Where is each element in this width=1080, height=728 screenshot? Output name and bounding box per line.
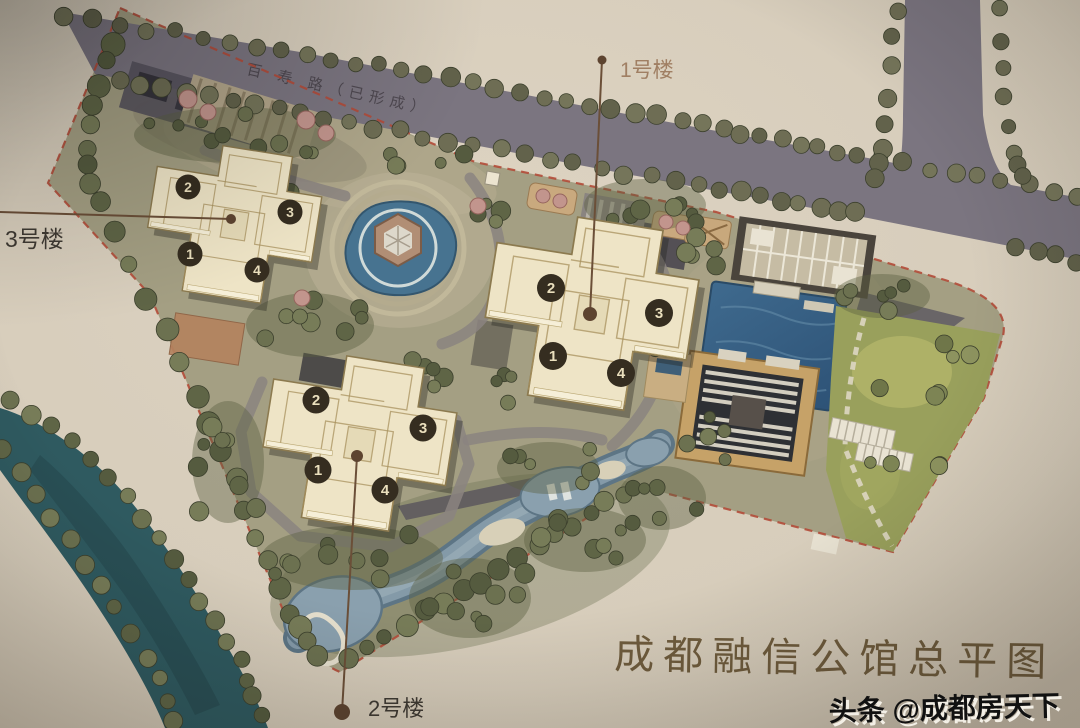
corner-shadow-overlay	[0, 0, 1080, 728]
site-plan-photo: 百 寿 路（已形成）	[0, 0, 1080, 728]
watermark: 头条 @成都房天下 头条 @成都房天下	[828, 689, 1063, 728]
watermark-text: 头条 @成都房天下	[828, 689, 1060, 727]
master-plan-svg: 百 寿 路（已形成）	[0, 0, 1080, 728]
